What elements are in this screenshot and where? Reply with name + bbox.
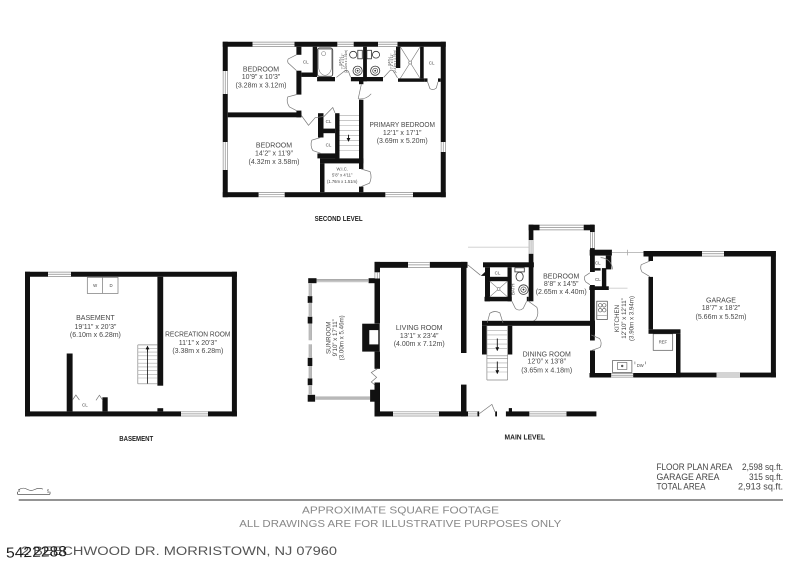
svg-text:10’9” x 10’3”: 10’9” x 10’3” [242, 74, 281, 81]
svg-text:CL: CL [326, 142, 332, 147]
svg-text:CL: CL [595, 277, 601, 282]
svg-text:(3.69m x 5.20m): (3.69m x 5.20m) [377, 138, 428, 145]
svg-text:(2.65m x 4.40m): (2.65m x 4.40m) [536, 289, 587, 296]
svg-text:19’11” x 20’3”: 19’11” x 20’3” [74, 324, 117, 331]
svg-text:12’1” x 17’1”: 12’1” x 17’1” [383, 130, 422, 137]
svg-text:13’1” x 23’4”: 13’1” x 23’4” [400, 333, 439, 340]
svg-text:2,913 sq.ft.: 2,913 sq.ft. [738, 482, 783, 492]
svg-text:BASEMENT: BASEMENT [76, 315, 115, 322]
svg-text:12’0” x 13’8”: 12’0” x 13’8” [527, 359, 566, 366]
svg-text:(3.38m x 6.28m): (3.38m x 6.28m) [172, 348, 223, 355]
svg-text:DINING ROOM: DINING ROOM [523, 351, 571, 358]
svg-text:8’8” x 14’5”: 8’8” x 14’5” [544, 281, 579, 288]
svg-text:W.I.C.: W.I.C. [336, 166, 347, 171]
svg-text:APPROXIMATE SQUARE FOOTAGE: APPROXIMATE SQUARE FOOTAGE [302, 506, 500, 517]
svg-text:2 BEECHWOOD DR. MORRISTOWN, NJ: 2 BEECHWOOD DR. MORRISTOWN, NJ 07960 [21, 544, 337, 558]
svg-text:(2.41m x 1.51m): (2.41m x 1.51m) [393, 50, 397, 73]
svg-text:CL: CL [429, 60, 435, 65]
svg-text:SECOND LEVEL: SECOND LEVEL [315, 214, 363, 223]
svg-text:CL: CL [82, 402, 88, 407]
svg-text:TOTAL AREA: TOTAL AREA [657, 482, 706, 492]
svg-text:GARAGE: GARAGE [706, 297, 736, 304]
svg-text:BATH: BATH [510, 284, 515, 295]
svg-text:KITCHEN: KITCHEN [614, 305, 621, 332]
svg-text:(4.32m x 3.58m): (4.32m x 3.58m) [249, 159, 300, 166]
svg-text:MAIN LEVEL: MAIN LEVEL [505, 433, 546, 442]
svg-text:GARAGE AREA: GARAGE AREA [657, 472, 720, 482]
svg-text:(3.90m x 3.94m): (3.90m x 3.94m) [629, 296, 636, 341]
svg-text:(5.66m x 5.52m): (5.66m x 5.52m) [696, 314, 747, 321]
svg-text:DW: DW [637, 363, 644, 368]
svg-text:REF: REF [659, 340, 668, 345]
svg-text:LIVING ROOM: LIVING ROOM [396, 325, 443, 332]
svg-text:12’10” x 12’11”: 12’10” x 12’11” [621, 298, 628, 338]
svg-text:(2.20m x 1.51m): (2.20m x 1.51m) [344, 50, 348, 73]
svg-text:(4.00m x 7.12m): (4.00m x 7.12m) [394, 341, 445, 348]
svg-text:BEDROOM: BEDROOM [543, 274, 579, 281]
svg-text:14’2” x 11’9”: 14’2” x 11’9” [255, 151, 294, 158]
svg-text:(1.76m x 1.51m): (1.76m x 1.51m) [327, 179, 358, 184]
svg-text:11’1” x 20’3”: 11’1” x 20’3” [179, 340, 218, 347]
svg-text:18’7” x 18’2”: 18’7” x 18’2” [702, 305, 741, 312]
svg-text:5422288: 5422288 [6, 544, 67, 562]
svg-text:PRIMARY BEDROOM: PRIMARY BEDROOM [369, 122, 435, 129]
svg-text:2,598 sq.ft.: 2,598 sq.ft. [742, 462, 783, 472]
svg-text:CL: CL [495, 270, 501, 275]
svg-text:(3.28m x 3.12m): (3.28m x 3.12m) [236, 83, 287, 90]
svg-text:CL: CL [595, 261, 601, 266]
svg-text:BEDROOM: BEDROOM [243, 66, 279, 73]
svg-text:(3.65m x 4.18m): (3.65m x 4.18m) [521, 368, 572, 375]
svg-text:(3.00m x 5.46m): (3.00m x 5.46m) [339, 315, 346, 360]
svg-text:D: D [109, 283, 112, 288]
svg-text:RECREATION ROOM: RECREATION ROOM [165, 332, 230, 339]
svg-text:ALL DRAWINGS ARE FOR ILLUSTRAT: ALL DRAWINGS ARE FOR ILLUSTRATIVE PURPOS… [239, 519, 562, 530]
svg-text:CL: CL [303, 59, 309, 64]
svg-text:BEDROOM: BEDROOM [256, 143, 292, 150]
svg-text:BASEMENT: BASEMENT [119, 434, 153, 443]
svg-text:315 sq.ft.: 315 sq.ft. [749, 472, 783, 482]
svg-text:(6.10m x 6.28m): (6.10m x 6.28m) [70, 332, 121, 339]
svg-text:FLOOR PLAN AREA: FLOOR PLAN AREA [657, 462, 733, 472]
svg-text:5’8” x 4’11”: 5’8” x 4’11” [332, 173, 353, 178]
svg-text:CL: CL [326, 119, 332, 124]
